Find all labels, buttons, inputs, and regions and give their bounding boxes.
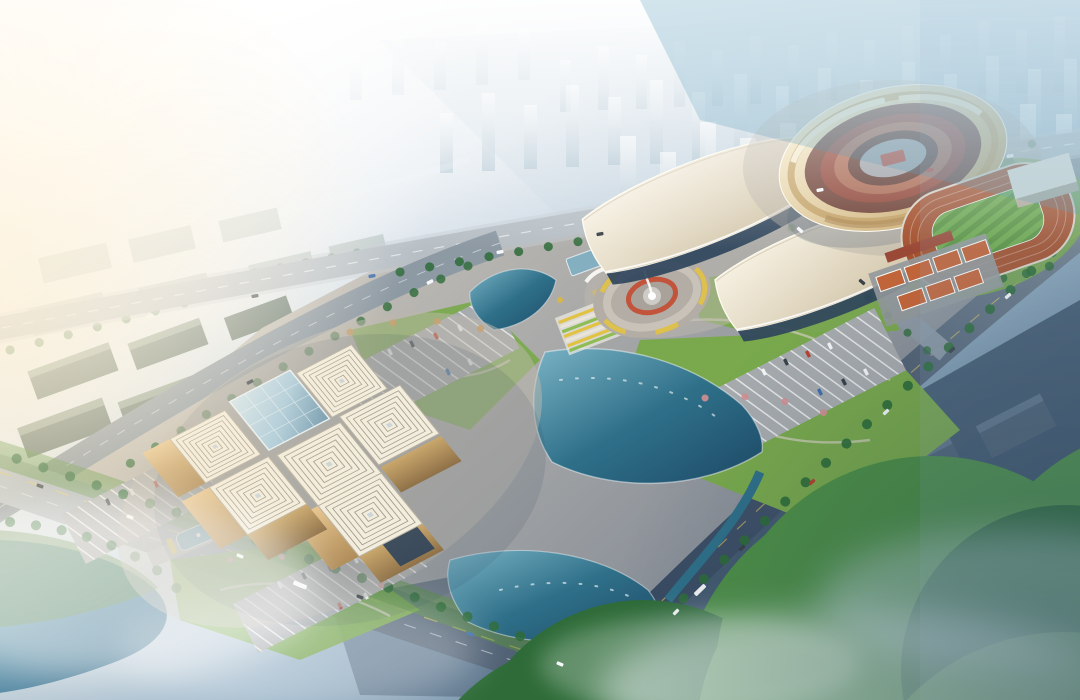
rendering-canvas — [0, 0, 1080, 700]
aerial-rendering — [0, 0, 1080, 700]
